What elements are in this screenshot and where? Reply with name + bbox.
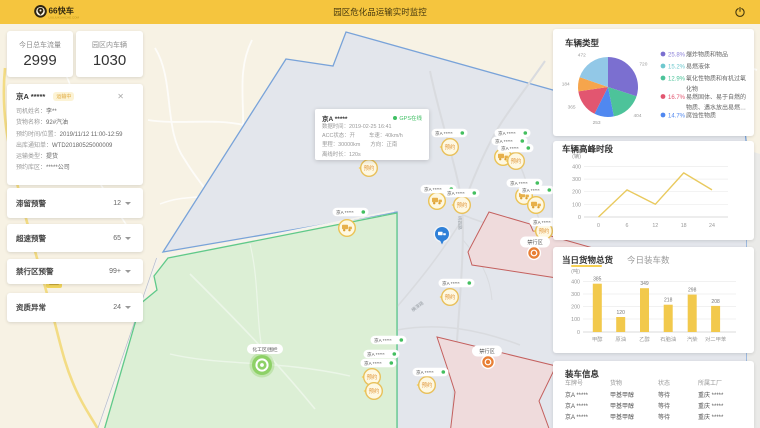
svg-text:720: 720: [639, 62, 647, 68]
svg-text:100: 100: [571, 317, 580, 323]
svg-text:218: 218: [664, 298, 673, 304]
svg-text:14.7%: 14.7%: [668, 113, 686, 119]
svg-text:等待: 等待: [658, 391, 670, 399]
svg-text:原油: 原油: [615, 335, 626, 343]
svg-text:重庆 *****: 重庆 *****: [698, 413, 724, 421]
svg-text:18: 18: [681, 223, 687, 229]
svg-text:化物: 化物: [686, 85, 698, 93]
svg-text:车牌号: 车牌号: [565, 379, 583, 387]
svg-text:16.7%: 16.7%: [668, 95, 686, 101]
svg-text:京A *****: 京A *****: [565, 402, 589, 410]
svg-text:0: 0: [578, 215, 581, 221]
svg-text:0: 0: [597, 223, 600, 229]
svg-text:京A *****: 京A *****: [565, 413, 589, 421]
svg-text:(辆): (辆): [572, 152, 581, 160]
svg-text:易燃固体、易于自燃的: 易燃固体、易于自燃的: [686, 93, 746, 101]
svg-text:385: 385: [593, 277, 602, 283]
svg-text:易燃液体: 易燃液体: [686, 62, 710, 70]
svg-text:253: 253: [593, 120, 601, 126]
svg-text:甲基甲醇: 甲基甲醇: [610, 413, 634, 421]
svg-text:184: 184: [562, 81, 570, 87]
svg-text:禁行区: 禁行区: [527, 238, 543, 246]
svg-text:12.9%: 12.9%: [668, 76, 686, 82]
svg-text:腐蚀性物质: 腐蚀性物质: [686, 111, 716, 119]
svg-text:甲醇: 甲醇: [592, 335, 603, 343]
svg-text:爆炸物质和物品: 爆炸物质和物品: [686, 50, 728, 58]
svg-text:物质、遇水放出易燃…: 物质、遇水放出易燃…: [686, 104, 746, 112]
svg-text:15.2%: 15.2%: [668, 64, 686, 70]
svg-text:化工区/围栏: 化工区/围栏: [252, 346, 278, 353]
svg-text:所属工厂: 所属工厂: [698, 379, 722, 387]
svg-text:石脑油: 石脑油: [660, 335, 676, 343]
svg-text:24: 24: [709, 223, 715, 229]
svg-text:重庆 *****: 重庆 *****: [698, 402, 724, 410]
svg-text:货物: 货物: [610, 379, 622, 387]
svg-text:氧化性物质和有机过氧: 氧化性物质和有机过氧: [686, 74, 746, 82]
svg-text:365: 365: [568, 104, 576, 110]
svg-text:300: 300: [571, 292, 580, 298]
svg-text:(吨): (吨): [571, 267, 580, 275]
svg-text:400: 400: [571, 280, 580, 286]
svg-text:汽柴: 汽柴: [687, 335, 698, 343]
svg-text:200: 200: [571, 305, 580, 311]
svg-text:100: 100: [572, 202, 581, 208]
svg-text:472: 472: [578, 52, 586, 58]
svg-text:禁行区: 禁行区: [479, 347, 495, 355]
svg-text:甲基甲醇: 甲基甲醇: [610, 391, 634, 399]
svg-text:120: 120: [617, 310, 626, 316]
svg-text:400: 400: [572, 165, 581, 171]
svg-text:404: 404: [634, 113, 642, 119]
svg-text:300: 300: [572, 177, 581, 183]
svg-text:重庆 *****: 重庆 *****: [698, 391, 724, 399]
svg-text:6: 6: [626, 223, 629, 229]
svg-text:12: 12: [652, 223, 658, 229]
svg-text:京A *****: 京A *****: [565, 391, 589, 399]
svg-text:298: 298: [688, 288, 697, 294]
svg-text:甲基甲醇: 甲基甲醇: [610, 402, 634, 410]
svg-text:25.8%: 25.8%: [668, 52, 686, 58]
svg-text:等待: 等待: [658, 402, 670, 410]
svg-text:乙醇: 乙醇: [639, 335, 650, 343]
svg-text:状态: 状态: [658, 379, 670, 387]
svg-text:349: 349: [640, 281, 649, 287]
svg-text:200: 200: [572, 190, 581, 196]
svg-text:对二甲苯: 对二甲苯: [705, 335, 727, 343]
svg-text:等待: 等待: [658, 413, 670, 421]
svg-text:0: 0: [577, 330, 580, 336]
svg-text:208: 208: [711, 299, 720, 305]
